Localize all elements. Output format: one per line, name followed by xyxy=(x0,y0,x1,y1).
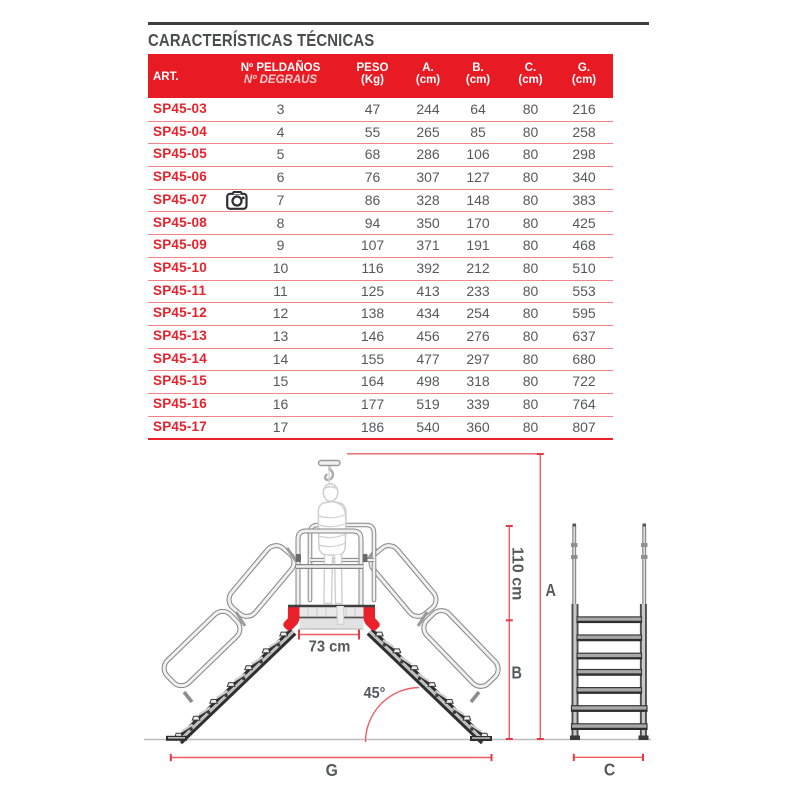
svg-text:B: B xyxy=(512,664,522,683)
svg-text:C: C xyxy=(604,760,615,780)
svg-text:A: A xyxy=(546,582,557,601)
svg-text:110 cm: 110 cm xyxy=(508,547,525,600)
svg-text:73 cm: 73 cm xyxy=(309,638,351,656)
svg-text:45°: 45° xyxy=(364,684,386,702)
svg-text:G: G xyxy=(326,760,338,780)
